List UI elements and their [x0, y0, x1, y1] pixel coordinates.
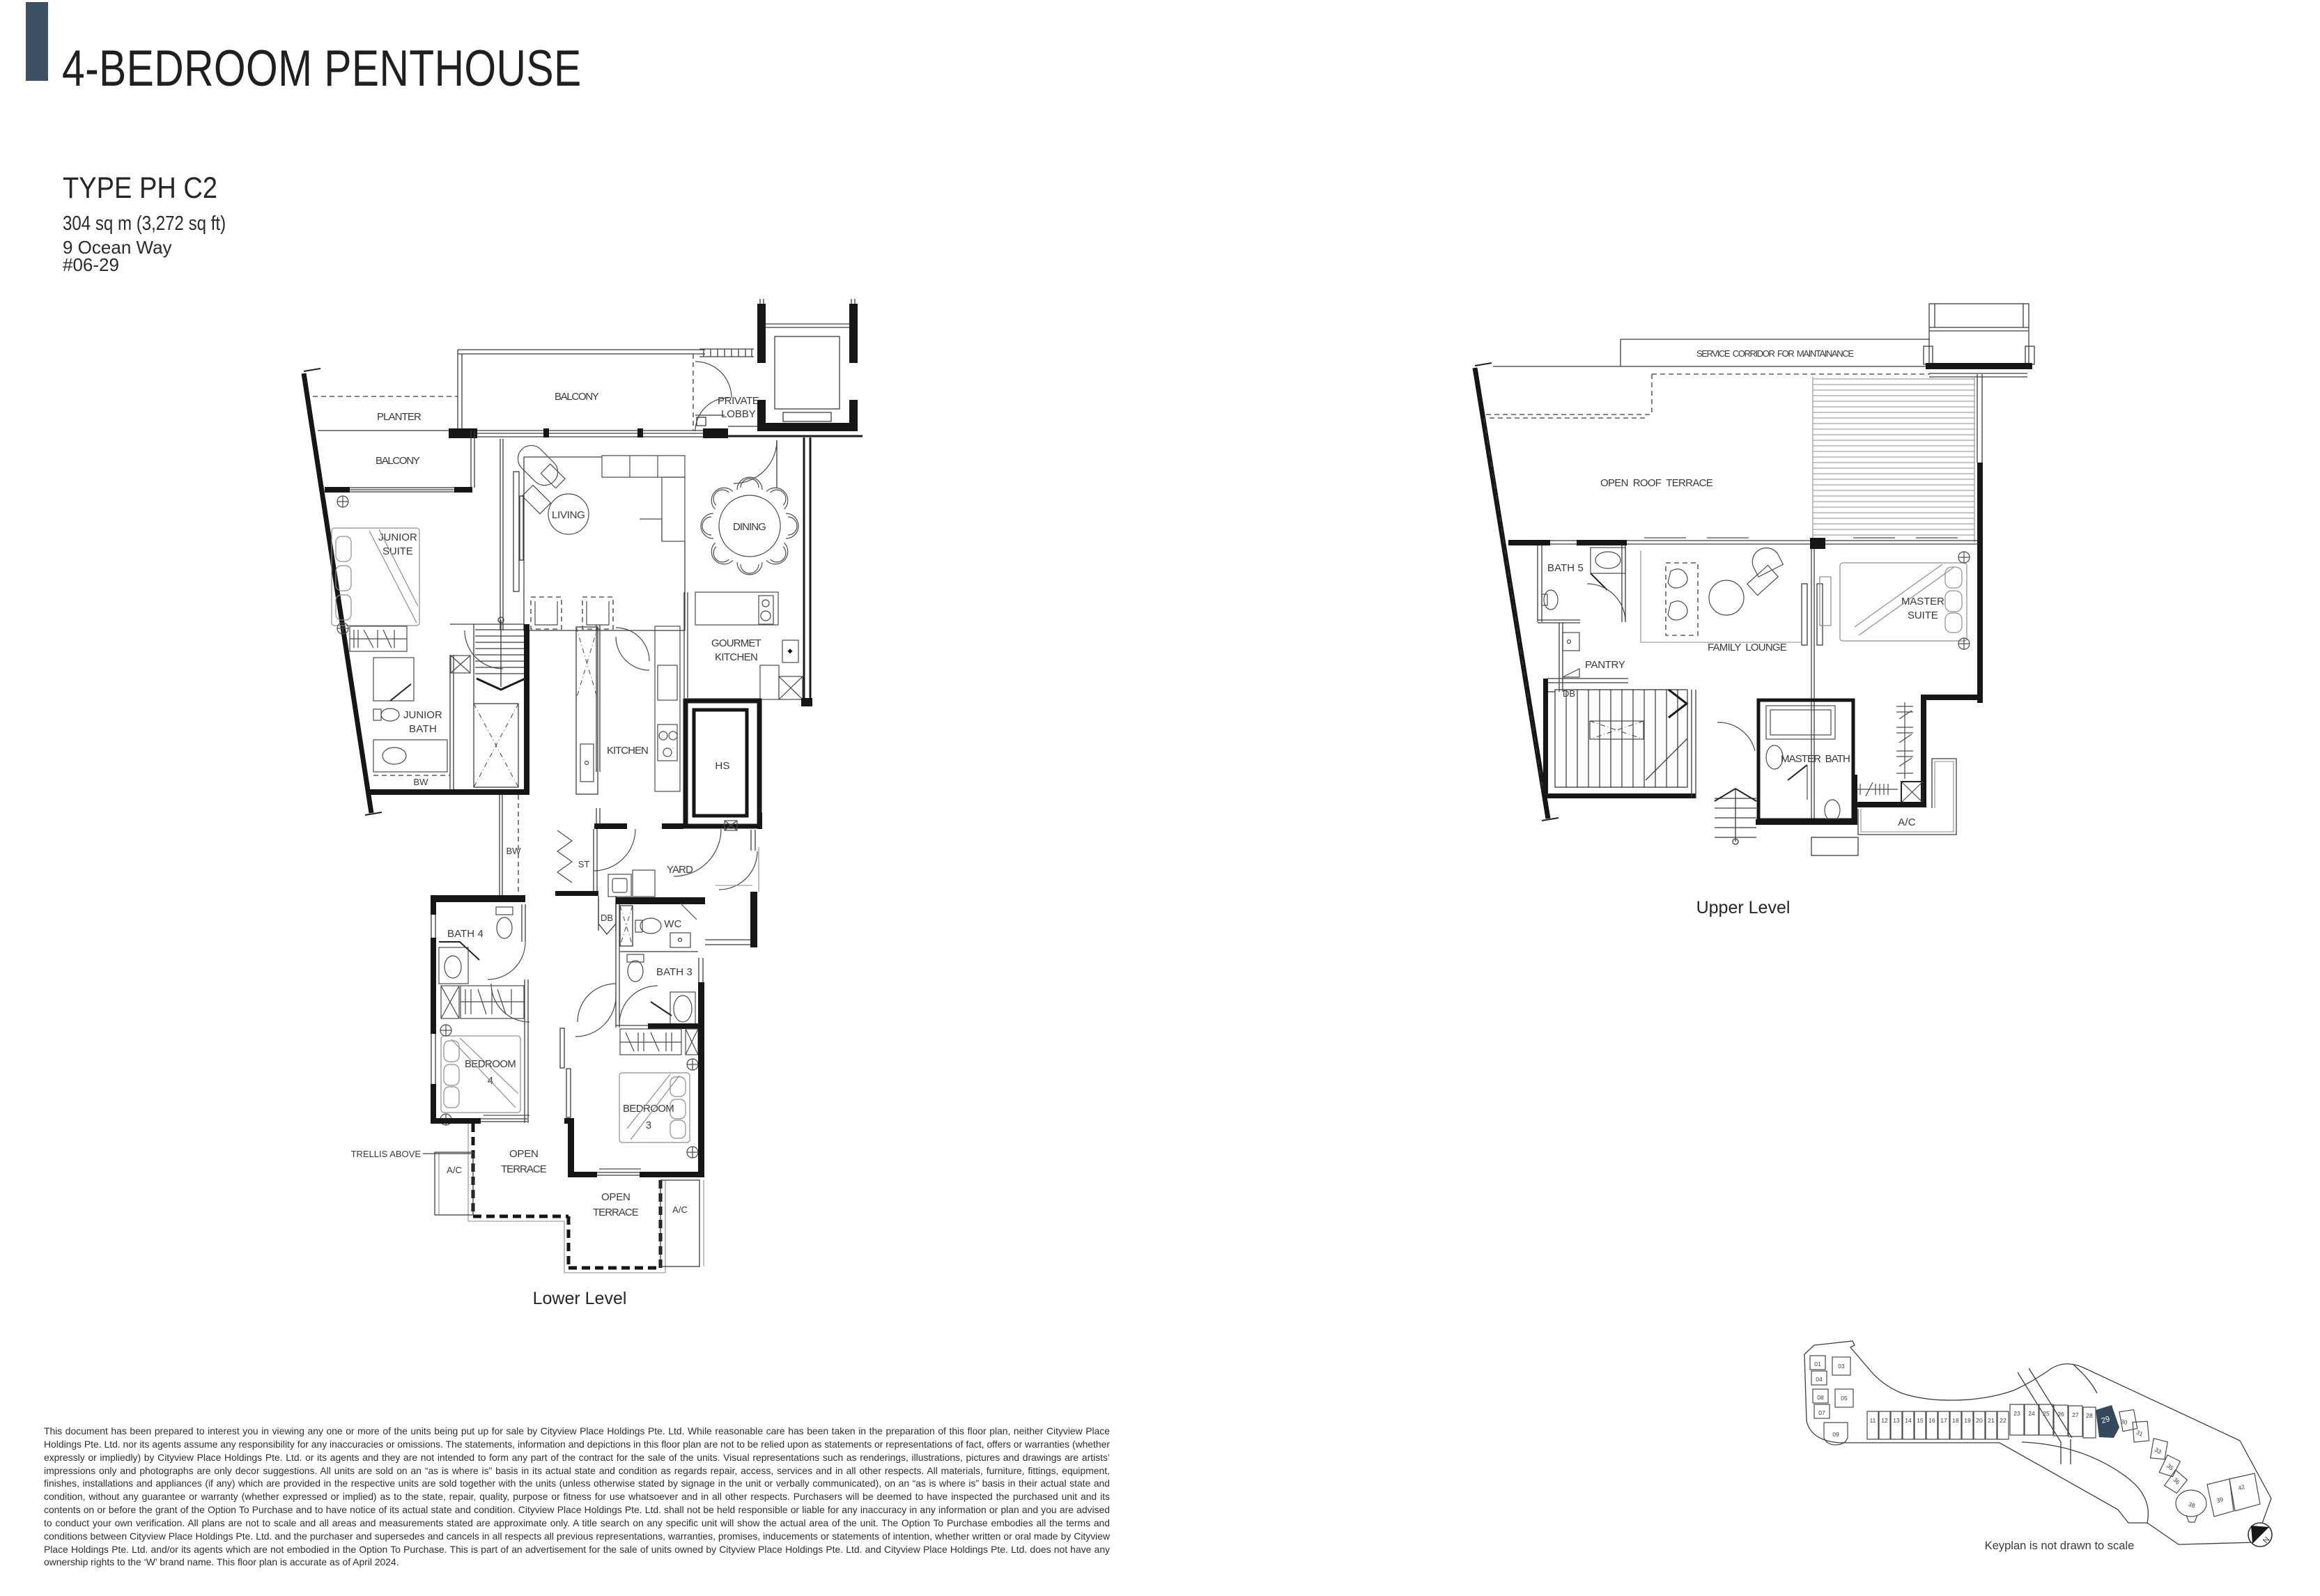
svg-text:BALCONY: BALCONY: [376, 455, 420, 467]
svg-text:39: 39: [2215, 1496, 2224, 1504]
svg-text:18: 18: [1952, 1417, 1959, 1424]
svg-text:3: 3: [646, 1119, 652, 1131]
svg-text:28: 28: [2086, 1412, 2093, 1419]
svg-text:WC: WC: [664, 918, 681, 930]
svg-text:A/C: A/C: [672, 1204, 688, 1215]
svg-text:22: 22: [2000, 1417, 2006, 1424]
svg-text:03: 03: [1838, 1363, 1845, 1370]
svg-text:DB: DB: [601, 913, 613, 923]
svg-text:SUITE: SUITE: [382, 545, 413, 557]
svg-text:12: 12: [1881, 1417, 1888, 1424]
svg-text:GOURMET: GOURMET: [711, 637, 761, 649]
svg-text:Upper Level: Upper Level: [1696, 898, 1791, 917]
svg-text:FAMILY LOUNGE: FAMILY LOUNGE: [1708, 642, 1787, 653]
svg-text:PLANTER: PLANTER: [377, 411, 422, 423]
svg-text:14: 14: [1905, 1417, 1912, 1424]
svg-text:19: 19: [1964, 1417, 1971, 1424]
svg-text:24: 24: [2028, 1410, 2035, 1417]
svg-text:15: 15: [1917, 1417, 1924, 1424]
svg-text:KITCHEN: KITCHEN: [715, 651, 758, 663]
svg-text:01: 01: [1814, 1361, 1821, 1368]
svg-text:SERVICE CORRIDOR FOR MAINTA: SERVICE CORRIDOR FOR MAINTAINANCE: [1696, 348, 1854, 359]
svg-text:23: 23: [2013, 1410, 2020, 1417]
svg-text:11: 11: [1870, 1417, 1876, 1424]
svg-text:16: 16: [1928, 1417, 1935, 1424]
svg-text:PRIVATE: PRIVATE: [718, 395, 759, 407]
svg-text:HS: HS: [715, 760, 729, 772]
svg-text:A/C: A/C: [1898, 816, 1916, 828]
svg-text:OPEN: OPEN: [509, 1148, 539, 1160]
svg-text:OPEN ROOF TERRACE: OPEN ROOF TERRACE: [1600, 477, 1713, 489]
svg-text:OPEN: OPEN: [601, 1191, 631, 1203]
svg-text:MASTER BATH: MASTER BATH: [1781, 753, 1850, 765]
svg-text:08: 08: [1817, 1394, 1824, 1401]
svg-text:BATH 4: BATH 4: [447, 928, 484, 940]
svg-text:21: 21: [1988, 1417, 1995, 1424]
svg-text:09: 09: [1832, 1431, 1839, 1438]
svg-text:BEDROOM: BEDROOM: [623, 1103, 674, 1115]
svg-text:MASTER: MASTER: [1901, 596, 1944, 607]
svg-text:SUITE: SUITE: [1908, 610, 1938, 621]
svg-text:25: 25: [2043, 1410, 2050, 1417]
svg-text:TERRACE: TERRACE: [501, 1163, 547, 1175]
svg-text:BW: BW: [414, 777, 429, 787]
svg-text:KITCHEN: KITCHEN: [607, 745, 649, 757]
svg-text:Lower Level: Lower Level: [533, 1289, 627, 1308]
svg-text:BALCONY: BALCONY: [555, 391, 599, 403]
svg-text:BEDROOM: BEDROOM: [465, 1058, 516, 1070]
svg-text:04: 04: [1816, 1376, 1823, 1383]
svg-text:ST: ST: [578, 859, 590, 869]
svg-text:33: 33: [2153, 1446, 2163, 1456]
svg-text:07: 07: [1818, 1409, 1825, 1416]
svg-text:DINING: DINING: [733, 521, 766, 533]
svg-text:42: 42: [2237, 1483, 2245, 1492]
svg-text:JUNIOR: JUNIOR: [378, 532, 417, 543]
svg-text:38: 38: [2188, 1501, 2196, 1510]
svg-text:BATH: BATH: [409, 723, 437, 735]
svg-text:BATH 3: BATH 3: [656, 966, 693, 978]
svg-text:BATH 5: BATH 5: [1547, 562, 1584, 574]
svg-text:17: 17: [1940, 1417, 1947, 1424]
svg-text:LOBBY: LOBBY: [721, 408, 756, 420]
svg-text:13: 13: [1893, 1417, 1900, 1424]
svg-text:31: 31: [2135, 1429, 2144, 1438]
svg-text:27: 27: [2072, 1411, 2079, 1418]
svg-text:35: 35: [2165, 1462, 2175, 1472]
svg-text:26: 26: [2057, 1411, 2064, 1418]
svg-text:30: 30: [2120, 1418, 2128, 1426]
svg-text:PANTRY: PANTRY: [1585, 659, 1625, 671]
svg-text:Keyplan is not drawn to scale: Keyplan is not drawn to scale: [1985, 1540, 2135, 1552]
svg-text:36: 36: [2172, 1476, 2181, 1486]
svg-text:A/C: A/C: [447, 1165, 462, 1175]
svg-text:20: 20: [1976, 1417, 1983, 1424]
svg-text:LIVING: LIVING: [552, 509, 585, 521]
svg-text:TERRACE: TERRACE: [593, 1207, 639, 1218]
svg-text:JUNIOR: JUNIOR: [403, 709, 442, 721]
svg-text:05: 05: [1841, 1395, 1848, 1402]
svg-text:BW: BW: [506, 846, 522, 856]
svg-text:TRELLIS ABOVE: TRELLIS ABOVE: [351, 1149, 422, 1159]
